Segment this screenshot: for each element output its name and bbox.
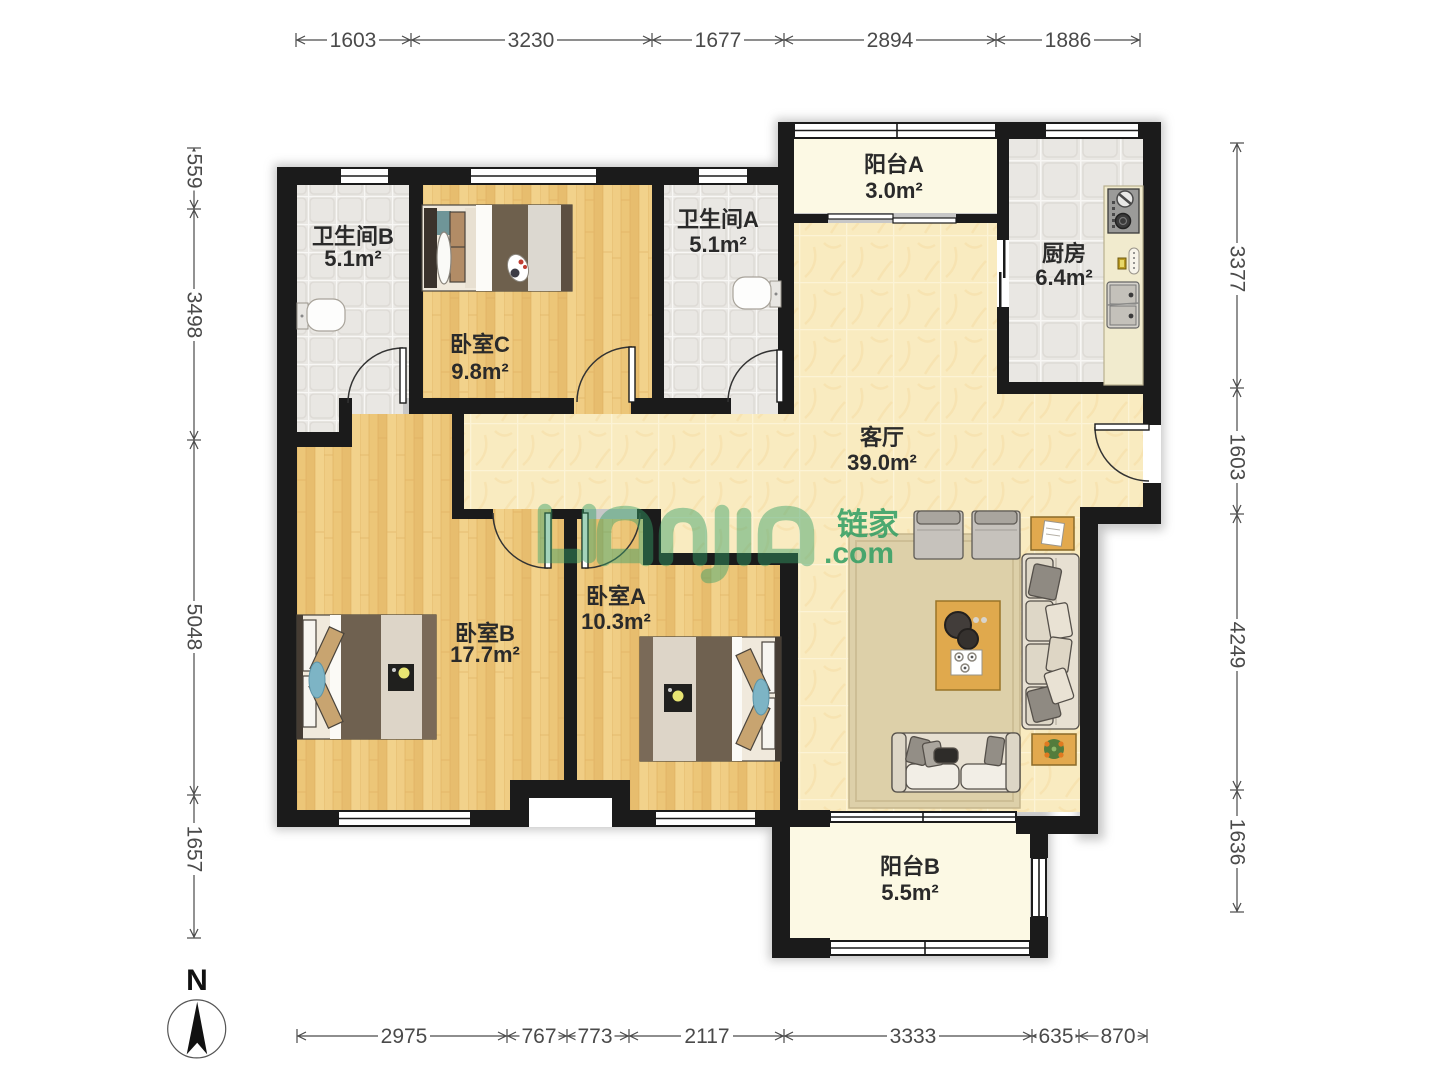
svg-text:厨房: 厨房 bbox=[1042, 241, 1086, 266]
svg-text:559: 559 bbox=[183, 153, 206, 188]
svg-text:870: 870 bbox=[1100, 1025, 1135, 1048]
svg-text:1657: 1657 bbox=[183, 826, 206, 873]
svg-text:1603: 1603 bbox=[1226, 434, 1249, 481]
svg-text:3.0m²: 3.0m² bbox=[865, 178, 922, 203]
svg-text:4249: 4249 bbox=[1226, 622, 1249, 669]
svg-text:1636: 1636 bbox=[1226, 819, 1249, 866]
svg-text:卧室A: 卧室A bbox=[586, 584, 646, 609]
svg-text:卧室C: 卧室C bbox=[450, 332, 510, 357]
svg-text:3230: 3230 bbox=[508, 29, 555, 52]
svg-text:阳台A: 阳台A bbox=[864, 152, 924, 177]
svg-text:3498: 3498 bbox=[183, 292, 206, 339]
svg-text:卫生间A: 卫生间A bbox=[677, 207, 759, 232]
svg-text:1603: 1603 bbox=[330, 29, 377, 52]
svg-text:客厅: 客厅 bbox=[860, 425, 904, 450]
svg-text:2117: 2117 bbox=[684, 1025, 729, 1048]
svg-text:3333: 3333 bbox=[890, 1025, 937, 1048]
svg-text:5048: 5048 bbox=[183, 604, 206, 651]
svg-text:635: 635 bbox=[1038, 1025, 1073, 1048]
svg-text:3377: 3377 bbox=[1226, 246, 1249, 293]
svg-text:N: N bbox=[186, 964, 208, 997]
svg-text:6.4m²: 6.4m² bbox=[1035, 265, 1092, 290]
svg-text:阳台B: 阳台B bbox=[880, 854, 940, 879]
svg-text:2975: 2975 bbox=[381, 1025, 428, 1048]
svg-text:5.1m²: 5.1m² bbox=[689, 232, 746, 257]
svg-text:2894: 2894 bbox=[867, 29, 914, 52]
svg-text:1677: 1677 bbox=[695, 29, 742, 52]
svg-text:9.8m²: 9.8m² bbox=[451, 359, 508, 384]
svg-text:773: 773 bbox=[577, 1025, 612, 1048]
svg-text:767: 767 bbox=[521, 1025, 556, 1048]
svg-text:.com: .com bbox=[824, 537, 894, 570]
svg-text:5.1m²: 5.1m² bbox=[324, 246, 381, 271]
svg-text:39.0m²: 39.0m² bbox=[847, 450, 917, 475]
svg-text:10.3m²: 10.3m² bbox=[581, 609, 651, 634]
svg-text:1886: 1886 bbox=[1045, 29, 1092, 52]
svg-text:17.7m²: 17.7m² bbox=[450, 642, 520, 667]
svg-text:5.5m²: 5.5m² bbox=[881, 880, 938, 905]
